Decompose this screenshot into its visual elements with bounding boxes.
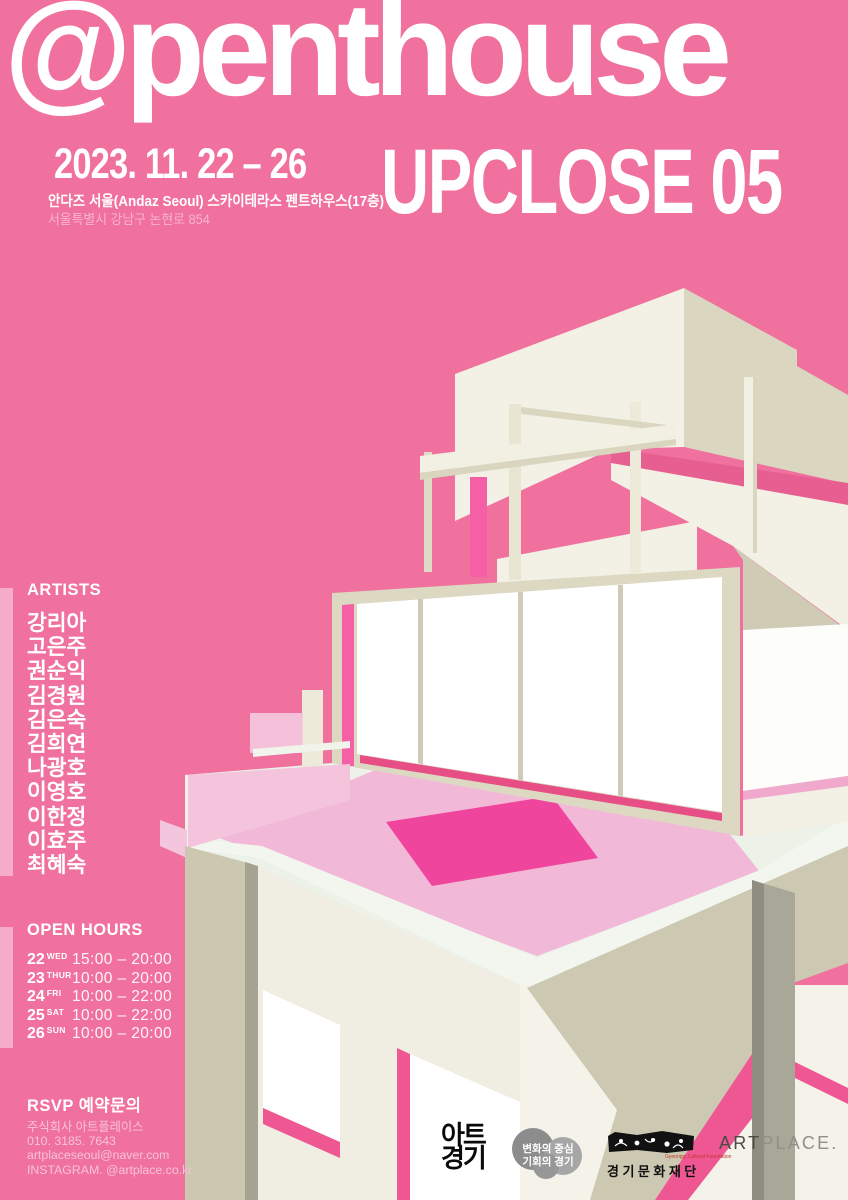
gcf-subtitle: Gyeonggi Cultural Foundation (665, 1154, 731, 1160)
left-strip-top (0, 588, 13, 876)
artist-name: 강리아 (27, 611, 86, 635)
pink-door-opening (470, 477, 487, 577)
hours-value: 10:00 – 20:00 (72, 1025, 172, 1043)
day-number: 24FRI (27, 988, 72, 1006)
railing-post-shade (753, 377, 757, 553)
gyeonggi-slogan-badge: 변화의 중심 기회의 경기 (508, 1126, 588, 1182)
artist-name: 이영호 (27, 780, 86, 804)
lower-left-khaki-face (185, 846, 252, 1200)
upclose-label: UPCLOSE 05 (381, 136, 782, 228)
railing-post (630, 402, 641, 574)
art-gyeonggi-line2: 경기 (441, 1147, 485, 1170)
artist-name: 김희연 (27, 732, 86, 756)
day-of-week: FRI (47, 988, 62, 998)
artist-name: 이효주 (27, 829, 86, 853)
day-number: 26SUN (27, 1025, 72, 1043)
open-hours-table: 22WED 15:00 – 20:00 23THUR 10:00 – 20:00… (27, 951, 172, 1044)
poster-background: @penthouse 2023. 11. 22 – 26 UPCLOSE 05 … (0, 0, 848, 1200)
open-hours-row: 22WED 15:00 – 20:00 (27, 951, 172, 970)
rsvp-instagram: INSTAGRAM. @artplace.co.kr (27, 1163, 192, 1177)
artist-name: 고은주 (27, 635, 86, 659)
gcf-name: 경기문화재단 (607, 1161, 717, 1180)
railing-post (509, 404, 521, 580)
hours-value: 10:00 – 20:00 (72, 970, 172, 988)
badge-line1: 변화의 중심 (522, 1142, 573, 1155)
rsvp-heading: RSVP 예약문의 (27, 1092, 141, 1116)
artplace-part2: PLACE. (761, 1133, 838, 1153)
rsvp-company: 주식회사 아트플레이스 (27, 1120, 192, 1134)
day-of-week: WED (47, 951, 68, 961)
hours-value: 10:00 – 22:00 (72, 1007, 172, 1025)
artist-name: 권순익 (27, 659, 86, 683)
open-hours-row: 23THUR 10:00 – 20:00 (27, 970, 172, 989)
day-number: 22WED (27, 951, 72, 969)
hours-value: 10:00 – 22:00 (72, 988, 172, 1006)
exhibition-date: 2023. 11. 22 – 26 (54, 143, 306, 186)
artist-name: 김경원 (27, 684, 86, 708)
hours-value: 15:00 – 20:00 (72, 951, 172, 969)
address-line: 서울특별시 강남구 논현로 854 (48, 208, 210, 228)
rsvp-email: artplaceseoul@naver.com (27, 1148, 192, 1162)
gcf-art-icon (607, 1131, 695, 1155)
topbox-side-face (684, 288, 848, 484)
page-title: @penthouse (4, 0, 725, 117)
glass-mullion (518, 592, 523, 781)
wing-window (743, 624, 848, 791)
open-hours-row: 26SUN 10:00 – 20:00 (27, 1025, 172, 1044)
rsvp-info: 주식회사 아트플레이스 010. 3185. 7643 artplaceseou… (27, 1120, 192, 1177)
left-strip-bottom (0, 927, 13, 1048)
gyeonggi-cultural-foundation-logo: Gyeonggi Cultural Foundation 경기문화재단 (607, 1131, 717, 1180)
art-gyeonggi-logo: 아트 경기 (441, 1124, 485, 1171)
artist-name: 김은숙 (27, 708, 86, 732)
badge-line2: 기회의 경기 (522, 1155, 573, 1168)
day-number: 25SAT (27, 1007, 72, 1025)
day-of-week: THUR (47, 970, 72, 980)
artist-name: 이한정 (27, 805, 86, 829)
open-hours-row: 24FRI 10:00 – 22:00 (27, 988, 172, 1007)
artists-heading: ARTISTS (27, 581, 101, 600)
glass-mullion (618, 585, 623, 797)
artplace-logo: ARTPLACE. (719, 1133, 839, 1154)
rsvp-phone: 010. 3185. 7643 (27, 1134, 192, 1148)
artists-list: 강리아 고은주 권순익 김경원 김은숙 김희연 나광호 이영호 이한정 이효주 … (27, 611, 86, 877)
artplace-part1: ART (719, 1133, 761, 1153)
day-of-week: SAT (47, 1007, 64, 1017)
lower-left-dark-edge (245, 862, 258, 1200)
artist-name: 나광호 (27, 756, 86, 780)
open-hours-row: 25SAT 10:00 – 22:00 (27, 1007, 172, 1026)
lower-pink-sliver (160, 820, 187, 858)
lower-window-trim (397, 1048, 410, 1200)
artist-name: 최혜숙 (27, 853, 86, 877)
day-of-week: SUN (47, 1025, 66, 1035)
open-hours-heading: OPEN HOURS (27, 921, 143, 940)
day-number: 23THUR (27, 970, 72, 988)
glass-mullion (418, 599, 423, 765)
